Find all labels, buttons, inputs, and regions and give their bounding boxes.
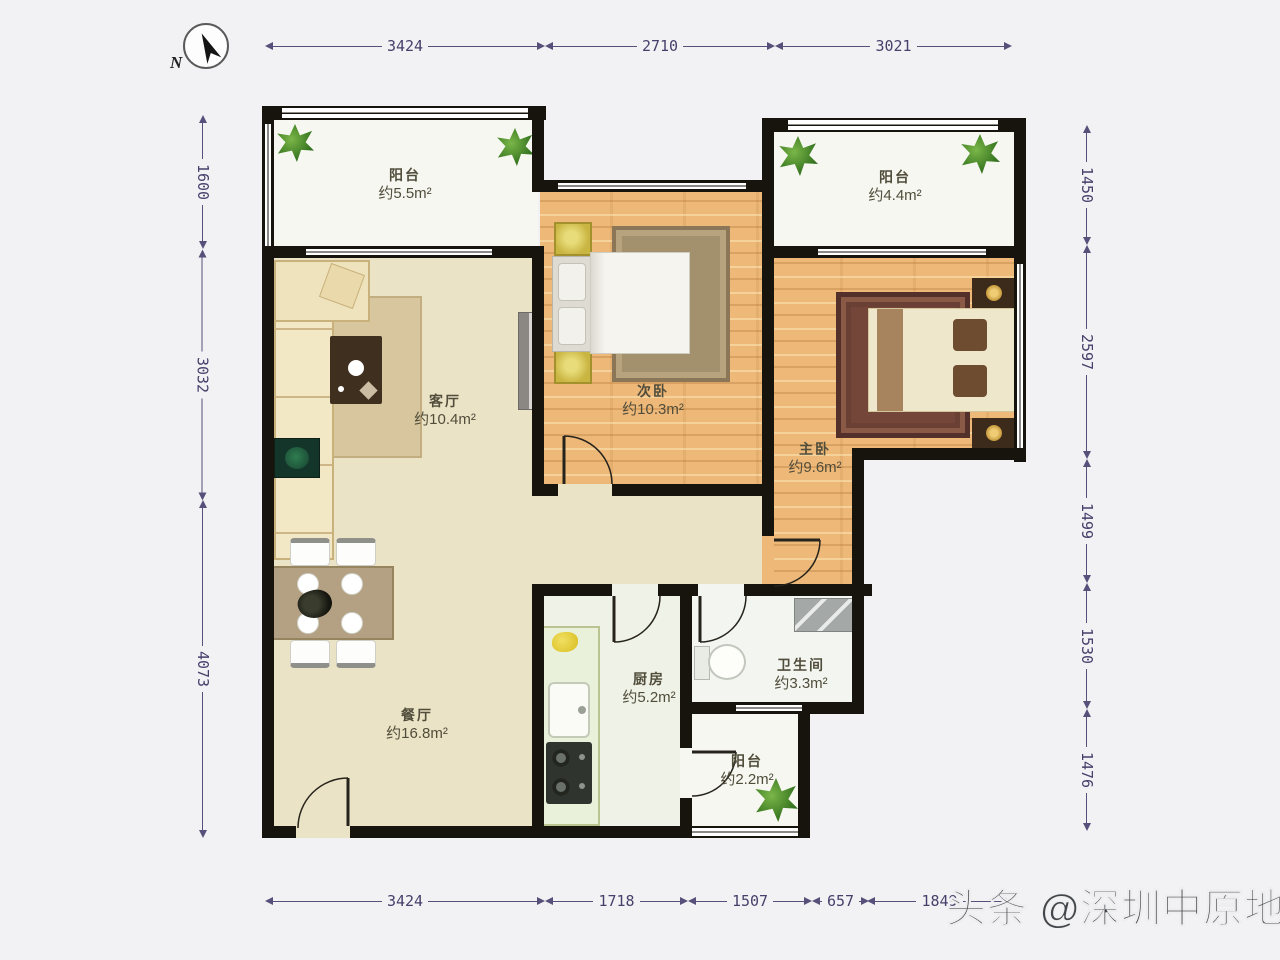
dim-right-3: 1499 [1080, 459, 1094, 583]
north-label: N [170, 53, 182, 73]
watermark: 头条 @深圳中原地产 [946, 876, 1280, 934]
dim-left-3: 4073 [196, 500, 210, 838]
master-door-arc [774, 540, 820, 586]
room-label-kitchen: 厨房 约5.2m² [606, 670, 692, 708]
room-label-bedroom2: 次卧 约10.3m² [603, 382, 703, 420]
dim-top-3: 3021 [775, 39, 1012, 53]
room-label-dining: 餐厅 约16.8m² [367, 706, 467, 744]
room-label-balcony-top-right: 阳台 约4.4m² [845, 168, 945, 206]
dim-right-4: 1530 [1080, 583, 1094, 709]
dim-bottom-3: 1507 [688, 894, 812, 908]
entrance-door-arc [298, 778, 348, 828]
dim-top-2: 2710 [545, 39, 775, 53]
kitchen-door-arc [614, 596, 660, 642]
bedroom2-door-arc [564, 436, 612, 484]
room-label-master: 主卧 约9.6m² [765, 440, 865, 478]
room-label-balcony-bottom: 阳台 约2.2m² [697, 752, 797, 790]
room-label-living: 客厅 约10.4m² [395, 392, 495, 430]
dim-left-1: 1600 [196, 115, 210, 249]
dim-right-2: 2597 [1080, 245, 1094, 459]
dim-bottom-2: 1718 [545, 894, 688, 908]
dim-left-2: 3032 [196, 250, 210, 501]
dim-right-5: 1476 [1080, 709, 1094, 831]
dim-bottom-1: 3424 [265, 894, 545, 908]
dim-right-1: 1450 [1080, 125, 1094, 245]
floorplan-page: { "compass": { "label": "N" }, "watermar… [0, 0, 1280, 960]
compass [183, 23, 229, 69]
bathroom-door-arc [700, 596, 746, 642]
north-arrow-icon [192, 29, 225, 65]
room-label-bathroom: 卫生间 约3.3m² [755, 656, 847, 694]
room-label-balcony-top-left: 阳台 约5.5m² [355, 166, 455, 204]
dim-top-1: 3424 [265, 39, 545, 53]
dim-bottom-4: 657 [812, 894, 867, 908]
